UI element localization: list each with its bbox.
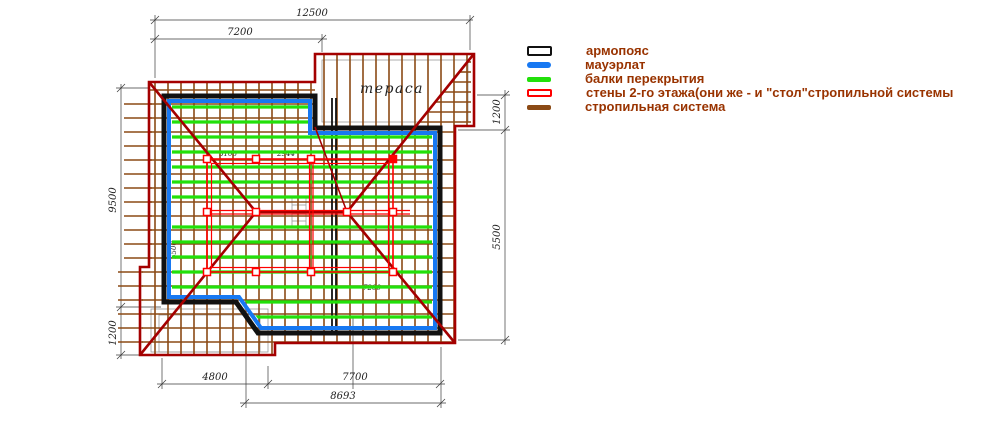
dim-left-lower: 1200 [108,320,119,346]
mauerlat-swatch-icon [527,62,551,68]
armopoyas-swatch-icon [527,46,552,56]
terrace-label: тераса [360,81,424,97]
legend-label: стропильная система [585,100,725,114]
legend-item-mauerlat: мауэрлат [527,58,987,72]
dim-right-main: 5500 [492,224,503,250]
legend-label: армопояс [586,44,649,58]
walls-swatch-icon [527,89,552,97]
rafter-tails-left [118,104,152,342]
dim-bottom-total: 8693 [330,391,355,402]
floor-beams-swatch-icon [527,77,551,82]
dim-bottom-left: 4800 [201,372,228,383]
legend-item-rafters: стропильная система [527,100,987,114]
dim-right-upper: 1200 [492,99,503,125]
dim-top-left: 7200 [227,27,253,38]
legend-label: балки перекрытия [585,72,704,86]
dim-top-total: 12500 [296,8,328,19]
legend: армопояс мауэрлат балки перекрытия стены… [527,44,987,114]
dim-bottom-right: 7700 [342,372,368,383]
legend-label: стены 2-го этажа(они же - и "стол"стропи… [586,86,953,100]
rafter-system-swatch-icon [527,105,551,110]
legend-item-beams: балки перекрытия [527,72,987,86]
legend-item-walls: стены 2-го этажа(они же - и "стол"стропи… [527,86,987,100]
legend-label: мауэрлат [585,58,645,72]
roof-plan-page: 12500 7200 9500 1200 1200 5500 4800 7700… [0,0,1000,445]
legend-item-armopoyas: армопояс [527,44,987,58]
dim-left-main: 9500 [108,187,119,213]
